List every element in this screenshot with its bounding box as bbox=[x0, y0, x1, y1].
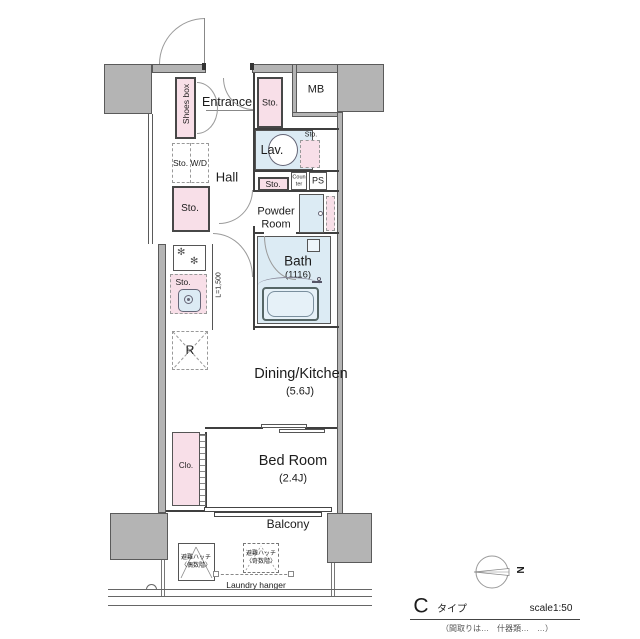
titleblock-rule bbox=[410, 619, 580, 620]
balcony-rail-line bbox=[108, 605, 372, 606]
wall-top-a bbox=[152, 64, 206, 73]
compass-icon bbox=[468, 550, 516, 594]
dk-door-arc bbox=[213, 233, 253, 277]
laundry-hanger-line bbox=[216, 574, 292, 575]
evac-hatch-even-label-1: 避難ハッチ bbox=[181, 555, 211, 561]
wall-mb-bottom bbox=[292, 112, 343, 117]
floor-plan: MB Shoes box Entrance Sto. Sto. W/D Hall… bbox=[0, 0, 640, 639]
burner-icon: ✻ bbox=[190, 256, 198, 267]
entrance-door-leaf bbox=[204, 18, 205, 64]
kitchen-storage-label: Sto. bbox=[175, 278, 190, 287]
pillar-top-left bbox=[104, 64, 152, 114]
powder-label-2: Room bbox=[261, 220, 290, 231]
balcony-rail-line bbox=[108, 596, 372, 597]
evac-hatch-even bbox=[178, 543, 215, 581]
storage-hall-label: Sto. bbox=[265, 180, 280, 189]
bath-small-box bbox=[307, 239, 320, 252]
wall-left-lower bbox=[158, 244, 166, 513]
evac-hatch-odd-label-1: 避難ハッチ bbox=[246, 551, 276, 557]
mb-label: MB bbox=[308, 85, 325, 96]
shoes-box-label: Shoes box bbox=[182, 84, 191, 124]
scale-label: scale1:50 bbox=[530, 604, 573, 614]
bath-faucet bbox=[312, 281, 322, 283]
sliding-door-panel bbox=[261, 424, 307, 428]
storage-entrance-label: Sto. bbox=[262, 99, 278, 108]
closet-label: Clo. bbox=[179, 462, 193, 470]
type-suffix: タイプ bbox=[437, 605, 467, 615]
hall-label: Hall bbox=[216, 171, 238, 184]
compass bbox=[468, 550, 516, 594]
pillar-top-right bbox=[337, 64, 384, 112]
wall-left-upper bbox=[148, 114, 153, 244]
storage-wd-label: Sto. W/D bbox=[173, 159, 207, 168]
hatch-peak-icon bbox=[179, 544, 214, 580]
balcony-divider-left bbox=[161, 560, 165, 596]
type-letter: C bbox=[413, 596, 428, 617]
counter-label-1: Coun bbox=[292, 175, 305, 181]
compass-north-label: N bbox=[514, 566, 524, 573]
bathtub-inner bbox=[267, 291, 314, 317]
dining-kitchen-size: (5.6J) bbox=[286, 387, 314, 398]
counter-label-2: ter bbox=[296, 182, 302, 188]
evac-hatch-even-label-2: 〈偶数階〉 bbox=[181, 563, 211, 569]
burner-icon: ✻ bbox=[177, 247, 185, 258]
shoebox-door-arc bbox=[197, 82, 218, 108]
shoebox-door-arc bbox=[197, 108, 218, 134]
wall-dk-bed-a bbox=[205, 427, 263, 429]
sink-drain-dot bbox=[187, 298, 190, 301]
wall-right bbox=[337, 112, 343, 518]
powder-door-arc bbox=[219, 190, 253, 224]
wall-below-window-left bbox=[166, 510, 204, 512]
hatch-peak-icon bbox=[244, 544, 278, 572]
storage-closet-label: Sto. bbox=[181, 204, 199, 214]
sliding-door-panel bbox=[279, 429, 325, 433]
storage-lav bbox=[300, 140, 320, 168]
balcony-rail-line bbox=[108, 589, 372, 590]
lav-label: Lav. bbox=[261, 144, 284, 157]
fridge-label: R bbox=[186, 344, 195, 356]
pillar-bottom-right bbox=[327, 513, 372, 563]
door-frame-mark bbox=[250, 63, 254, 70]
storage-lav-label: Sto. bbox=[305, 132, 317, 139]
door-frame-mark bbox=[202, 63, 206, 70]
bath-faucet-knob bbox=[317, 277, 321, 281]
stove: ✻ ✻ bbox=[173, 245, 206, 271]
balcony-divider-right bbox=[331, 563, 335, 596]
balcony-label: Balcony bbox=[267, 518, 310, 530]
pillar-bottom-left bbox=[110, 513, 168, 560]
titleblock-footnote: （間取りは… 什器類… …） bbox=[441, 625, 553, 633]
wall-pink-hatch bbox=[326, 196, 335, 231]
evac-hatch-odd bbox=[243, 543, 279, 573]
wall-bath-bottom bbox=[253, 326, 339, 328]
evac-hatch-odd-label-2: 〈奇数階〉 bbox=[246, 559, 276, 565]
bath-label: Bath bbox=[284, 254, 312, 268]
bed-room-label: Bed Room bbox=[259, 454, 328, 469]
bed-room-size: (2.4J) bbox=[279, 474, 307, 485]
powder-label-1: Powder bbox=[257, 207, 294, 218]
laundry-hanger-end bbox=[213, 571, 219, 577]
wall-wet-left-lower bbox=[253, 226, 255, 330]
entrance-door-arc bbox=[159, 18, 205, 64]
dining-kitchen-label: Dining/Kitchen bbox=[254, 367, 348, 382]
ps-label: PS bbox=[312, 177, 324, 186]
laundry-hanger-end bbox=[288, 571, 294, 577]
wall-bath-top-a bbox=[253, 232, 264, 234]
washer-knob bbox=[318, 211, 323, 216]
laundry-hanger-label: Laundry hanger bbox=[226, 581, 286, 590]
